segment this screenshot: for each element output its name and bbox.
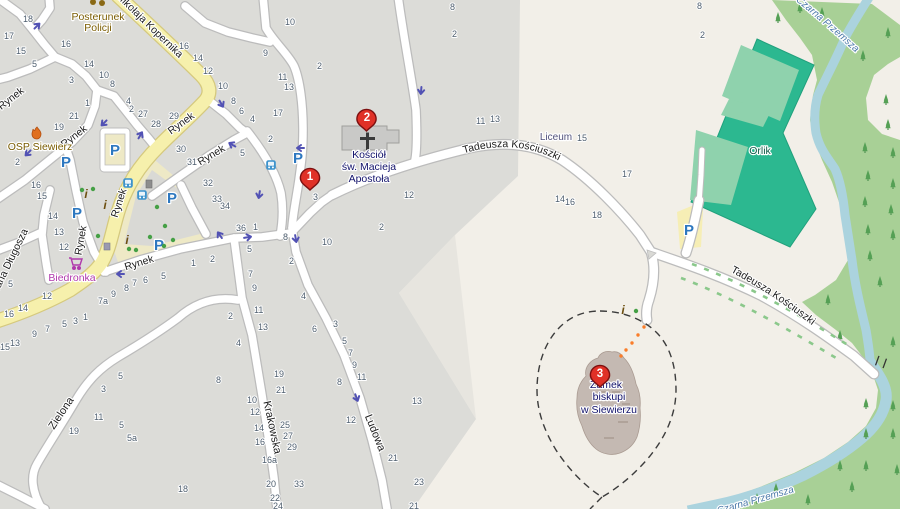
svg-text:10: 10	[285, 17, 295, 27]
svg-text:10: 10	[247, 395, 257, 405]
svg-text:3: 3	[313, 192, 318, 202]
svg-text:10: 10	[218, 81, 228, 91]
svg-text:11: 11	[278, 72, 287, 82]
svg-text:5a: 5a	[127, 433, 137, 443]
svg-text:Apostoła: Apostoła	[349, 173, 390, 185]
svg-text:Biedronka: Biedronka	[48, 272, 95, 284]
svg-text:11: 11	[254, 305, 263, 315]
svg-text:29: 29	[169, 111, 179, 121]
svg-text:16: 16	[4, 309, 14, 319]
svg-text:5: 5	[32, 59, 37, 69]
svg-text:1: 1	[191, 258, 196, 268]
svg-text:11: 11	[476, 116, 485, 126]
svg-text:25: 25	[280, 420, 290, 430]
svg-text:16: 16	[565, 197, 575, 207]
svg-text:P: P	[167, 190, 177, 207]
svg-text:27: 27	[283, 431, 293, 441]
svg-text:3: 3	[333, 319, 338, 329]
svg-text:19: 19	[69, 426, 79, 436]
svg-text:21: 21	[69, 111, 79, 121]
svg-text:16a: 16a	[262, 455, 277, 465]
svg-text:15: 15	[577, 133, 587, 143]
svg-text:19: 19	[54, 122, 64, 132]
svg-text:2: 2	[364, 112, 370, 124]
svg-text:11: 11	[94, 412, 103, 422]
svg-text:10: 10	[99, 70, 109, 80]
svg-text:13: 13	[490, 114, 500, 124]
svg-text:12: 12	[203, 66, 213, 76]
svg-text:17: 17	[4, 31, 14, 41]
svg-text:4: 4	[250, 114, 255, 124]
svg-text:10: 10	[322, 237, 332, 247]
svg-text:8: 8	[697, 1, 702, 11]
svg-text:27: 27	[138, 109, 148, 119]
svg-text:12: 12	[346, 415, 356, 425]
svg-text:16: 16	[179, 41, 189, 51]
svg-text:15: 15	[0, 342, 10, 352]
svg-text:5: 5	[161, 271, 166, 281]
svg-text:2: 2	[15, 157, 20, 167]
svg-text:12: 12	[59, 242, 69, 252]
svg-text:29: 29	[287, 442, 297, 452]
svg-text:15: 15	[16, 46, 26, 56]
svg-text:12: 12	[42, 291, 52, 301]
svg-text:34: 34	[220, 201, 230, 211]
svg-text:11: 11	[357, 372, 366, 382]
svg-text:3: 3	[597, 368, 603, 380]
svg-text:16: 16	[255, 437, 265, 447]
svg-text:2: 2	[700, 30, 705, 40]
svg-text:3: 3	[73, 316, 78, 326]
svg-text:4: 4	[236, 338, 241, 348]
svg-text:2: 2	[268, 134, 273, 144]
svg-text:13: 13	[258, 322, 268, 332]
svg-text:21: 21	[388, 453, 398, 463]
svg-text:14: 14	[193, 53, 203, 63]
svg-text:6: 6	[312, 324, 317, 334]
svg-text:7: 7	[132, 278, 137, 288]
svg-text:5: 5	[62, 319, 67, 329]
svg-text:7: 7	[248, 269, 253, 279]
svg-text:2: 2	[228, 311, 233, 321]
svg-text:14: 14	[555, 194, 565, 204]
svg-text:7a: 7a	[98, 296, 108, 306]
svg-text:21: 21	[276, 385, 286, 395]
svg-text:7: 7	[45, 324, 50, 334]
svg-text:Policji: Policji	[84, 22, 111, 34]
svg-text:8: 8	[124, 283, 129, 293]
svg-text:15: 15	[37, 191, 47, 201]
svg-text:Kościół: Kościół	[352, 149, 387, 161]
svg-text:17: 17	[273, 108, 283, 118]
svg-text:P: P	[684, 222, 694, 239]
svg-text:4: 4	[301, 291, 306, 301]
svg-text:Liceum: Liceum	[540, 132, 572, 143]
svg-text:6: 6	[239, 106, 244, 116]
svg-text:1: 1	[83, 312, 88, 322]
svg-text:18: 18	[178, 484, 188, 494]
svg-text:16: 16	[61, 39, 71, 49]
svg-text:8: 8	[231, 96, 236, 106]
svg-text:14: 14	[84, 59, 94, 69]
svg-text:9: 9	[263, 48, 268, 58]
svg-text:18: 18	[592, 210, 602, 220]
svg-text:6: 6	[143, 275, 148, 285]
svg-text:P: P	[293, 150, 303, 167]
svg-text:P: P	[61, 154, 71, 171]
svg-text:8: 8	[110, 79, 115, 89]
svg-text:9: 9	[32, 329, 37, 339]
svg-text:3: 3	[101, 384, 106, 394]
svg-text:32: 32	[203, 178, 213, 188]
svg-text:14: 14	[48, 211, 58, 221]
svg-text:7: 7	[348, 348, 353, 358]
svg-text:13: 13	[412, 396, 422, 406]
svg-text:16: 16	[31, 180, 41, 190]
svg-text:biskupi: biskupi	[593, 391, 626, 403]
svg-text:8: 8	[216, 375, 221, 385]
svg-text:2: 2	[317, 61, 322, 71]
svg-text:w Siewierzu: w Siewierzu	[580, 404, 637, 416]
svg-text:2: 2	[452, 29, 457, 39]
svg-text:2: 2	[210, 254, 215, 264]
svg-text:24: 24	[273, 501, 283, 509]
svg-text:3: 3	[69, 75, 74, 85]
svg-text:20: 20	[266, 479, 276, 489]
svg-text:23: 23	[414, 477, 424, 487]
svg-text:13: 13	[54, 227, 64, 237]
svg-text:Orlik: Orlik	[749, 145, 771, 157]
svg-text:36: 36	[236, 223, 246, 233]
svg-text:2: 2	[129, 104, 134, 114]
svg-text:21: 21	[409, 501, 419, 509]
svg-text:9: 9	[252, 283, 257, 293]
svg-text:1: 1	[307, 171, 314, 183]
svg-text:8: 8	[337, 377, 342, 387]
svg-text:1: 1	[253, 222, 258, 232]
svg-text:5: 5	[247, 244, 252, 254]
svg-text:18: 18	[23, 14, 33, 24]
svg-text:5: 5	[8, 279, 13, 289]
svg-text:13: 13	[284, 82, 294, 92]
svg-text:2: 2	[289, 256, 294, 266]
svg-text:17: 17	[622, 169, 632, 179]
svg-text:30: 30	[176, 144, 186, 154]
svg-text:2: 2	[379, 222, 384, 232]
svg-text:8: 8	[283, 232, 288, 242]
svg-text:28: 28	[151, 119, 161, 129]
svg-text:9: 9	[352, 360, 357, 370]
svg-text:12: 12	[250, 407, 260, 417]
svg-text:14: 14	[254, 423, 264, 433]
svg-text:14: 14	[18, 303, 28, 313]
svg-text:12: 12	[404, 190, 414, 200]
svg-text:5: 5	[240, 148, 245, 158]
svg-text:1: 1	[85, 98, 90, 108]
svg-text:33: 33	[294, 479, 304, 489]
svg-text:31: 31	[187, 157, 197, 167]
svg-text:P: P	[72, 205, 82, 222]
svg-text:8: 8	[450, 2, 455, 12]
svg-text:P: P	[110, 142, 120, 159]
svg-text:19: 19	[274, 369, 284, 379]
svg-text:5: 5	[118, 371, 123, 381]
svg-text:5: 5	[342, 336, 347, 346]
svg-text:13: 13	[10, 338, 20, 348]
svg-text:9: 9	[111, 289, 116, 299]
svg-text:OSP Siewierz: OSP Siewierz	[8, 141, 73, 153]
svg-text:5: 5	[119, 420, 124, 430]
svg-text:św. Macieja: św. Macieja	[342, 161, 396, 173]
